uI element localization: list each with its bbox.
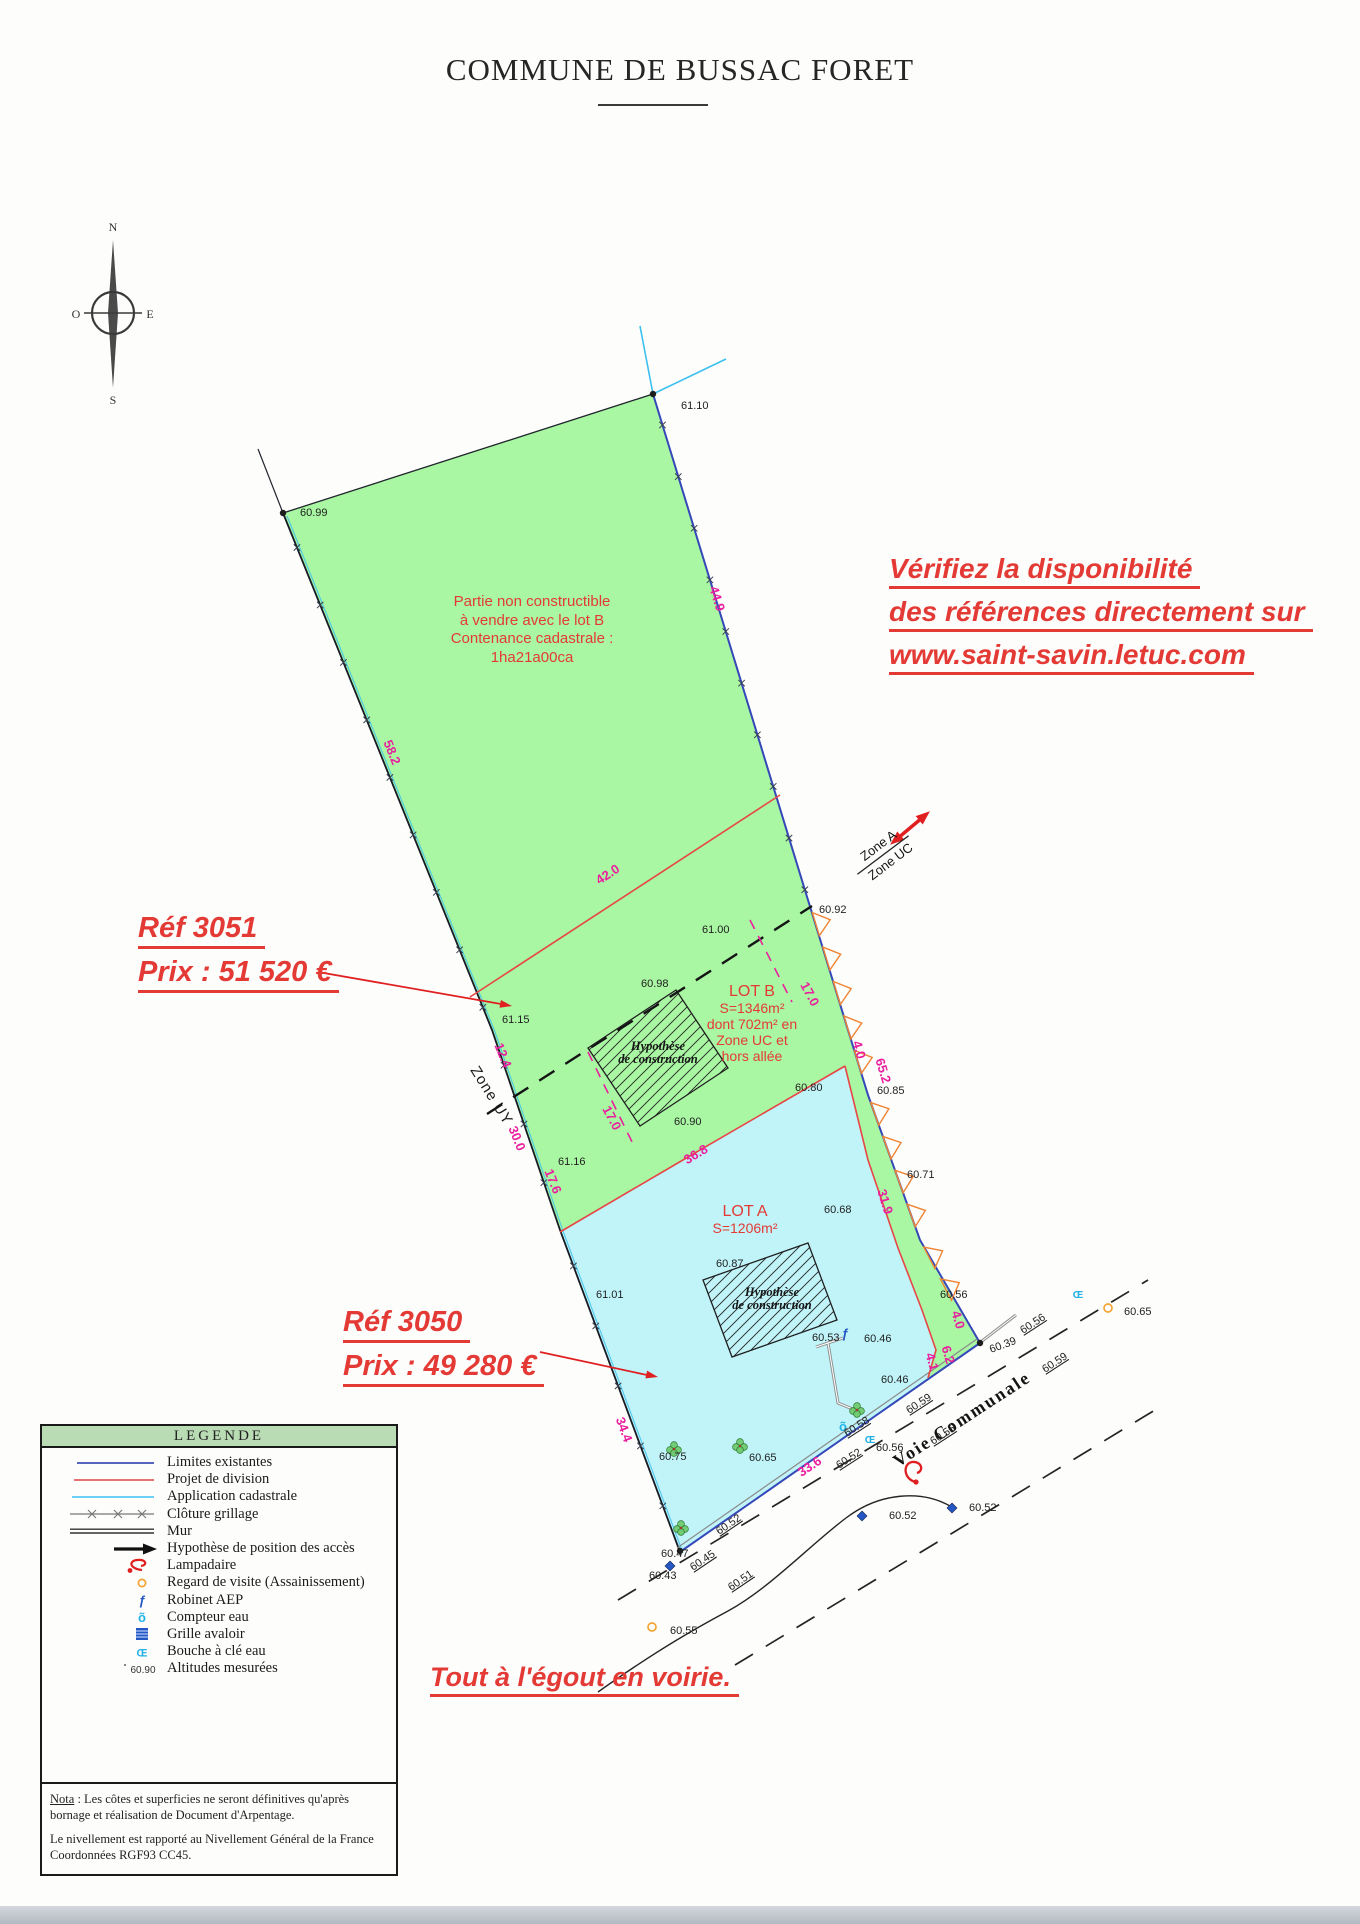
elevation-label: 60.59 [1040, 1350, 1070, 1375]
elevation-label: 61.01 [596, 1289, 624, 1301]
ref-3050-note: Réf 3050 Prix : 49 280 € [343, 1306, 544, 1394]
legend-item-regard: Regard de visite (Assainissement) [42, 1574, 396, 1591]
legend-item-lampadaire: Lampadaire [42, 1557, 396, 1574]
legend-item-division: Projet de division [42, 1471, 396, 1488]
elevation-label: 60.46 [881, 1374, 909, 1386]
wall-line-icon [42, 1523, 167, 1539]
elevation-label: 60.55 [670, 1625, 698, 1637]
lot-b-title: LOT B [729, 983, 775, 1000]
elevation-label: 60.53 [812, 1332, 840, 1344]
compass-north-label: N [109, 220, 118, 234]
lot-b-note-2: Zone UC et [716, 1032, 788, 1048]
robinet-symbol: ƒ [841, 1326, 848, 1341]
elevation-label: 60.43 [649, 1570, 677, 1582]
lampadaire-icon [42, 1558, 167, 1574]
ref-3051-note: Réf 3051 Prix : 51 520 € [138, 912, 339, 1000]
access-arrow-icon [42, 1541, 167, 1557]
elevation-label: 60.56 [940, 1289, 968, 1301]
nota-box: Nota : Les côtes et superficies ne seron… [40, 1782, 398, 1876]
elevation-label: 60.51 [726, 1568, 756, 1593]
svg-text:ƒ: ƒ [841, 1326, 848, 1341]
elevation-label: 60.52 [889, 1510, 917, 1522]
elevation-label: 60.47 [661, 1548, 689, 1560]
legend-item-cloture: Clôture grillage [42, 1506, 396, 1523]
elevation-label: 61.16 [558, 1156, 586, 1168]
ref-3051-price: Prix : 51 520 € [138, 956, 339, 993]
grille-symbol [857, 1511, 867, 1521]
bouche-a-cle-icon: Œ [42, 1644, 167, 1660]
legend-item-acces: Hypothèse de position des accès [42, 1540, 396, 1557]
bouche-symbol: Œ [1073, 1289, 1084, 1301]
non-constructible-line: à vendre avec le lot B [382, 612, 682, 631]
nota-paragraph-1: Nota : Les côtes et superficies ne seron… [50, 1792, 388, 1823]
non-constructible-line: Partie non constructible [382, 593, 682, 612]
elevation-label: 60.39 [988, 1335, 1018, 1356]
legend-item-limites: Limites existantes [42, 1454, 396, 1471]
robinet-aep-icon: ƒ [42, 1592, 167, 1608]
elevation-label: 60.71 [907, 1169, 935, 1181]
elevation-label: 60.56 [1018, 1311, 1048, 1336]
compass-west-label: O [72, 307, 81, 321]
compass-rose: N O E S [72, 220, 154, 407]
lot-a-construction-label-1: Hypothèse [744, 1285, 800, 1299]
elevation-label: 60.75 [659, 1451, 687, 1463]
availability-line: Vérifiez la disponibilité [889, 553, 1200, 589]
legend-item-compteur: õ Compteur eau [42, 1609, 396, 1626]
dot-symbol [977, 1340, 983, 1346]
elevation-label: 60.52 [969, 1502, 997, 1514]
elevation-label: 60.45 [688, 1548, 718, 1573]
existing-limit-line-icon [42, 1455, 167, 1471]
legend-item-mur: Mur [42, 1523, 396, 1540]
cadastral-plan-page: COMMUNE DE BUSSAC FORET [0, 0, 1360, 1924]
boundary-extension [258, 449, 283, 513]
elevation-label: 61.10 [681, 400, 709, 412]
lot-b-construction-label-2: de construction [618, 1052, 698, 1066]
legend-panel: LEGENDE Limites existantes Projet de div… [40, 1424, 398, 1876]
svg-text:60.90: 60.90 [130, 1665, 155, 1676]
elevation-label: 60.65 [1124, 1306, 1152, 1318]
availability-url[interactable]: www.saint-savin.letuc.com [889, 639, 1254, 675]
non-constructible-line: Contenance cadastrale : [382, 630, 682, 649]
fence-line-icon [42, 1506, 167, 1522]
lot-a-area: S=1206m² [713, 1220, 778, 1236]
lot-b-note-3: hors allée [722, 1048, 783, 1064]
dot-symbol [280, 510, 286, 516]
cadastre-lines-top [640, 326, 726, 394]
legend-title: LEGENDE [42, 1426, 396, 1448]
elevation-label: 60.98 [641, 978, 669, 990]
lot-a-title: LOT A [722, 1203, 767, 1220]
cadastre-line-icon [42, 1489, 167, 1505]
dot-symbol [650, 391, 656, 397]
sewer-line: Tout à l'égout en voirie. [430, 1662, 739, 1697]
ref-3050-price: Prix : 49 280 € [343, 1350, 544, 1387]
grille-avaloir-icon [42, 1626, 167, 1642]
nota-paragraph-2: Le nivellement est rapporté au Nivelleme… [50, 1832, 388, 1863]
non-constructible-line: 1ha21a00ca [382, 649, 682, 668]
regard-symbol [1104, 1304, 1112, 1312]
svg-text:Œ: Œ [865, 1434, 876, 1446]
lot-b-construction-label-1: Hypothèse [630, 1039, 686, 1053]
altitude-sample-icon: 60.90 [42, 1661, 167, 1677]
elevation-label: 60.52 [834, 1446, 864, 1471]
elevation-label: 60.56 [876, 1442, 904, 1454]
svg-text:Œ: Œ [1073, 1289, 1084, 1301]
legend-item-bouche: Œ Bouche à clé eau [42, 1643, 396, 1660]
elevation-label: 60.65 [749, 1452, 777, 1464]
lot-b-note-1: dont 702m² en [707, 1016, 797, 1032]
sewer-note: Tout à l'égout en voirie. [430, 1662, 739, 1704]
elevation-label: 60.87 [716, 1258, 744, 1270]
compass-east-label: E [146, 307, 153, 321]
lot-a-construction-label-2: de construction [732, 1298, 812, 1312]
compass-south-label: S [110, 393, 117, 407]
legend-item-grille: Grille avaloir [42, 1626, 396, 1643]
dimension-label: 65.2 [872, 1056, 894, 1085]
elevation-label: 61.00 [702, 924, 730, 936]
compteur-eau-icon: õ [42, 1609, 167, 1625]
lampadaire-symbol [906, 1462, 922, 1485]
non-constructible-note: Partie non constructible à vendre avec l… [382, 593, 682, 667]
ref-3051-ref: Réf 3051 [138, 912, 265, 949]
svg-text:ƒ: ƒ [138, 1593, 145, 1608]
availability-line: des références directement sur [889, 596, 1313, 632]
svg-text:Œ: Œ [137, 1647, 148, 1659]
availability-note: Vérifiez la disponibilité des références… [889, 553, 1313, 682]
lot-b-area: S=1346m² [720, 1000, 785, 1016]
elevation-label: 61.15 [502, 1014, 530, 1026]
regard-visite-icon [42, 1575, 167, 1591]
bouche-symbol: Œ [865, 1434, 876, 1446]
scan-artifact-band [0, 1906, 1360, 1924]
regard-symbol [648, 1623, 656, 1631]
elevation-label: 60.68 [824, 1204, 852, 1216]
elevation-label: 60.90 [674, 1116, 702, 1128]
legend-item-altitudes: 60.90 Altitudes mesurées [42, 1660, 396, 1677]
elevation-label: 60.46 [864, 1333, 892, 1345]
elevation-label: 60.99 [300, 507, 328, 519]
division-line-icon [42, 1472, 167, 1488]
legend-item-robinet: ƒ Robinet AEP [42, 1592, 396, 1609]
elevation-label: 60.85 [877, 1085, 905, 1097]
elevation-label: 60.92 [819, 904, 847, 916]
elevation-label: 60.80 [795, 1082, 823, 1094]
ref-3050-ref: Réf 3050 [343, 1306, 470, 1343]
legend-item-cadastre: Application cadastrale [42, 1488, 396, 1505]
svg-text:õ: õ [138, 1610, 146, 1625]
